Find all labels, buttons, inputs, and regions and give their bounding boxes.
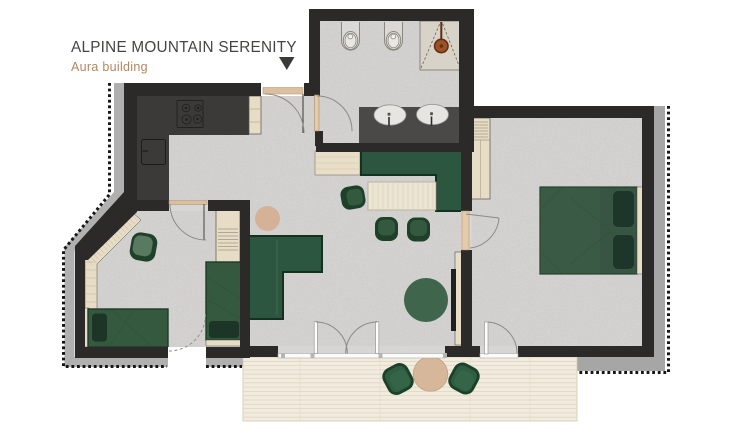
svg-text:Aura building: Aura building <box>71 60 148 74</box>
svg-text:ALPINE MOUNTAIN SERENITY: ALPINE MOUNTAIN SERENITY <box>71 39 297 56</box>
